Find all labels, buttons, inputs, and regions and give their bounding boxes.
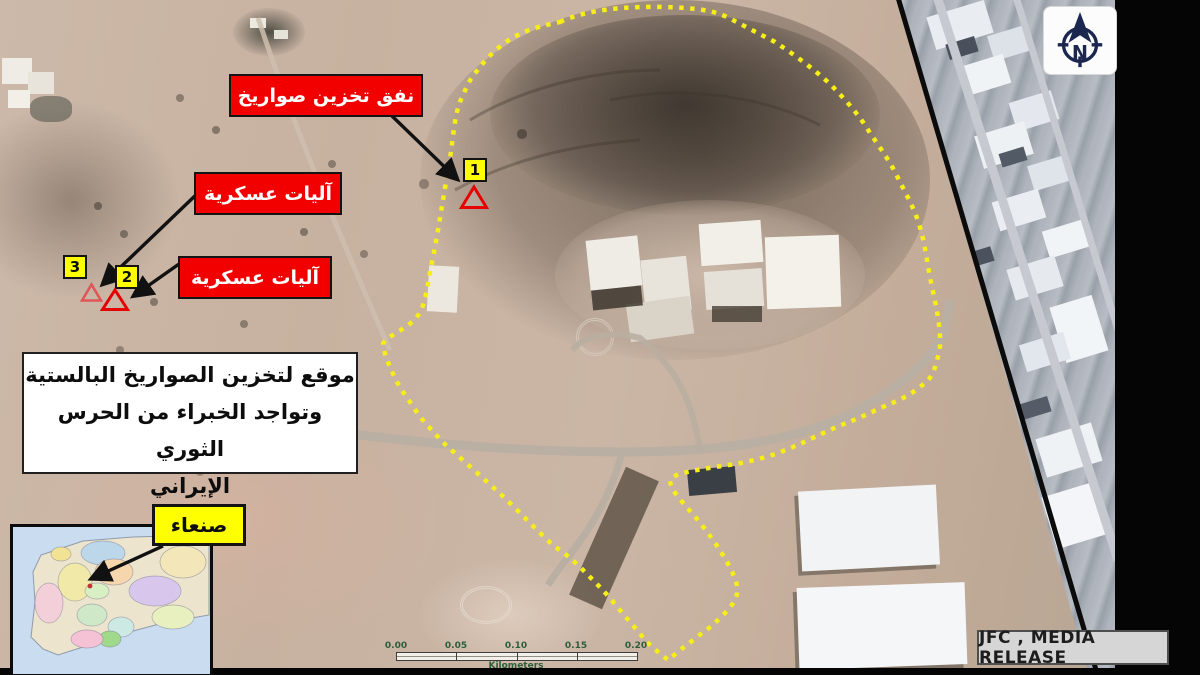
compound-building: [427, 265, 459, 313]
building: [274, 30, 288, 39]
marker-3-number: 3: [63, 255, 87, 279]
right-black-band: [1115, 0, 1200, 675]
tree-cluster: [30, 96, 72, 122]
tunnel-label-box: نفق تخزين صواريخ: [229, 74, 423, 117]
scale-tick: 0.10: [505, 641, 527, 651]
marker-2-number: 2: [115, 265, 139, 289]
compound-building: [699, 220, 764, 266]
marker-3-triangle: [80, 282, 103, 303]
hill-shadow-ridge: [490, 15, 880, 215]
marker-1-triangle: [459, 184, 489, 210]
scale-bar-unit: Kilometers: [388, 661, 644, 671]
compound-building: [704, 268, 765, 310]
city-building: [1019, 332, 1071, 372]
yemen-map-graphic: [13, 527, 210, 674]
warehouse: [797, 582, 968, 670]
scale-bar: 0.00 0.05 0.10 0.15 0.20 Kilometers: [388, 641, 644, 673]
city-building: [1042, 219, 1090, 258]
city-building: [992, 189, 1047, 232]
compass-rose: N: [1043, 6, 1117, 75]
vehicles-label-text-1: آليات عسكرية: [204, 183, 332, 205]
vehicles-label-box-2: آليات عسكرية: [178, 256, 332, 299]
scale-tick: 0.20: [625, 641, 647, 651]
site-description-box: موقع لتخزين الصواريخ البالستية وتواجد ال…: [22, 352, 358, 474]
site-description-line2: وتواجد الخبراء من الحرس الثوري: [24, 394, 356, 468]
building: [28, 72, 54, 94]
building-shadow: [712, 306, 762, 322]
marker-2-triangle: [100, 287, 130, 312]
compound-building: [765, 235, 841, 310]
tunnel-label-text: نفق تخزين صواريخ: [238, 85, 415, 107]
circular-structure: [576, 318, 614, 356]
capital-dot: [88, 584, 93, 589]
city-building: [959, 54, 1012, 96]
scale-bar-segments: [396, 652, 638, 661]
vehicles-label-box-1: آليات عسكرية: [194, 172, 342, 215]
building-shadow: [1018, 396, 1051, 420]
city-building: [1006, 255, 1063, 300]
north-arrow-icon: N: [1051, 10, 1109, 72]
marker-1-number: 1: [463, 158, 487, 182]
svg-text:N: N: [1072, 41, 1088, 64]
satellite-annotation-slide: 0.00 0.05 0.10 0.15 0.20 Kilometers: [0, 0, 1200, 675]
dark-roof-building: [687, 466, 737, 496]
city-label-box: صنعاء: [152, 504, 246, 546]
scale-tick: 0.15: [565, 641, 587, 651]
marker-1-label: 1: [470, 161, 480, 179]
marker-2-label: 2: [122, 268, 132, 286]
city-label-text: صنعاء: [171, 513, 228, 537]
vegetation-speckles: [0, 0, 4, 4]
site-description-line3: الإيراني: [24, 468, 356, 505]
site-description-line1: موقع لتخزين الصواريخ البالستية: [24, 357, 356, 394]
credit-text: JFC , MEDIA RELEASE: [979, 628, 1167, 668]
city-building: [1027, 155, 1073, 192]
credit-box: JFC , MEDIA RELEASE: [977, 630, 1169, 665]
circular-field-mark: [460, 586, 512, 624]
marker-3-label: 3: [70, 258, 80, 276]
warehouse: [798, 484, 940, 571]
tree-cluster: [233, 8, 305, 56]
scale-bar-ticks: 0.00 0.05 0.10 0.15 0.20: [388, 641, 644, 651]
building: [8, 90, 30, 108]
vehicles-label-text-2: آليات عسكرية: [191, 267, 319, 289]
city-building: [1035, 422, 1102, 477]
scale-tick: 0.00: [385, 641, 407, 651]
yemen-inset-map: [10, 524, 213, 675]
building: [250, 18, 266, 28]
scale-tick: 0.05: [445, 641, 467, 651]
city-building: [1041, 481, 1112, 550]
compound-building: [586, 235, 643, 290]
